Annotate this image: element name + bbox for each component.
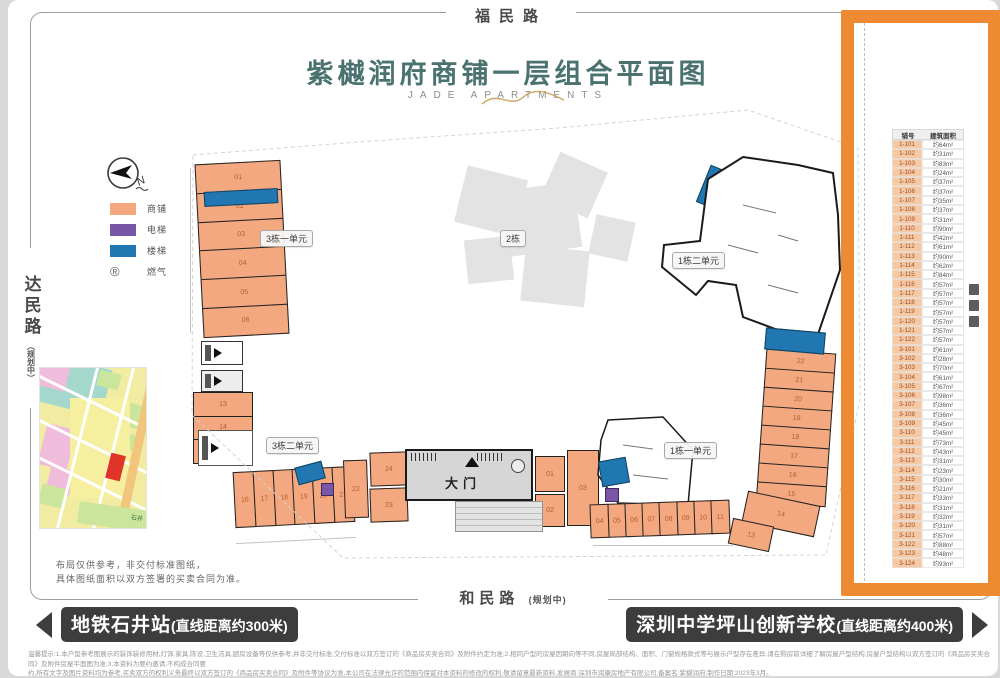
elevator-color-swatch [110, 224, 136, 236]
page-background: 福民路 达民路 （规划中） 和民路 (规划中) 紫樾润府商铺一层组合平面图 JA… [8, 0, 998, 676]
poi-distance: (直线距离约300米) [171, 618, 288, 634]
table-row: 1-104约24m² [892, 168, 964, 177]
poi-distance: (直线距离约400米) [836, 618, 953, 634]
main-gate: 大门 [405, 449, 533, 501]
building1-unit2-plan [648, 145, 853, 355]
badge-building3-unit2: 3栋二单元 [266, 437, 319, 454]
poi-metro: 地铁石井站(直线距离约300米) [36, 607, 298, 642]
table-header-area: 建筑面积 [923, 130, 963, 139]
disclaimer-line: 温馨提示:1.本户型参考图展示的装饰装修用材,灯饰,家具,陈设,卫生洁具,厨房设… [28, 650, 994, 669]
area-table-rows: 1-101约64m²1-102约31m²1-103约83m²1-104约24m²… [892, 140, 964, 568]
table-row: 1-112约61m² [892, 242, 964, 251]
table-row: 3-107约36m² [892, 400, 964, 409]
table-row: 1-122约57m² [892, 335, 964, 344]
stair-color-swatch [110, 245, 136, 257]
elevator-block [321, 483, 334, 496]
table-row: 3-115约30m² [892, 475, 964, 484]
gas-symbol-icon: ® [110, 266, 136, 278]
road-left-sub: （规划中） [26, 342, 37, 382]
table-row: 1-103约83m² [892, 159, 964, 168]
poi-name: 深圳中学坪山创新学校 [636, 615, 836, 636]
disclaimer-text: 温馨提示:1.本户型参考图展示的装饰装修用材,灯饰,家具,陈设,卫生洁具,厨房设… [28, 650, 994, 678]
table-row: 3-118约31m² [892, 503, 964, 512]
table-row: 3-123约48m² [892, 549, 964, 558]
gate-label: 大门 [445, 473, 481, 492]
table-row: 1-107约35m² [892, 196, 964, 205]
gate-arrow-icon [465, 457, 479, 467]
table-row: 1-117约57m² [892, 289, 964, 298]
table-row: 1-119约57m² [892, 307, 964, 316]
table-row: 1-101约64m² [892, 140, 964, 149]
badge-building1-unit1: 1栋一单元 [664, 442, 717, 459]
inset-map-label: 石井 [130, 512, 143, 523]
table-row: 3-109约45m² [892, 419, 964, 428]
gate-steps [455, 501, 543, 532]
road-left-name: 达民路 [19, 275, 44, 338]
table-row: 3-110约45m² [892, 428, 964, 437]
table-row: 3-116约21m² [892, 484, 964, 493]
table-row: 3-102约28m² [892, 354, 964, 363]
poi-school: 深圳中学坪山创新学校(直线距离约400米) [626, 607, 988, 642]
table-row: 3-122约88m² [892, 540, 964, 549]
arrow-right-icon [972, 612, 988, 638]
road-bottom-name: 和民路 [459, 590, 519, 607]
badge-building2: 2栋 [500, 230, 526, 247]
table-row: 1-109约31m² [892, 214, 964, 223]
location-inset-map: 石井 [40, 368, 146, 528]
table-row: 1-114约62m² [892, 261, 964, 270]
road-bottom-sub: (规划中) [529, 595, 567, 605]
table-row: 3-111约73m² [892, 438, 964, 447]
table-row: 1-116约57m² [892, 279, 964, 288]
table-row: 3-106约98m² [892, 391, 964, 400]
arrow-left-icon [36, 612, 52, 638]
table-row: 3-104约61m² [892, 372, 964, 381]
building1-unit1-shops-row: 0405060708091011 [590, 501, 729, 538]
road-label-bottom: 和民路 (规划中) [418, 584, 608, 611]
table-row: 3-103约70m² [892, 363, 964, 372]
table-row: 1-110约90m² [892, 224, 964, 233]
table-row: 3-114约23m² [892, 465, 964, 474]
table-row: 3-121约57m² [892, 530, 964, 539]
table-header-shop-no: 铺号 [893, 130, 923, 139]
table-row: 3-113约31m² [892, 456, 964, 465]
table-row: 1-121约57m² [892, 326, 964, 335]
table-row: 1-106约37m² [892, 186, 964, 195]
table-row: 3-117约33m² [892, 493, 964, 502]
stair-block [598, 457, 630, 487]
elevator-block [605, 488, 619, 502]
poi-name: 地铁石井站 [71, 615, 171, 636]
poster: 福民路 达民路 （规划中） 和民路 (规划中) 紫樾润府商铺一层组合平面图 JA… [0, 0, 1000, 678]
table-row: 1-118约57m² [892, 298, 964, 307]
north-compass-icon: N [106, 156, 152, 196]
shop-color-swatch [110, 203, 136, 215]
svg-text:N: N [135, 174, 148, 188]
poi-school-bar: 深圳中学坪山创新学校(直线距离约400米) [626, 607, 963, 642]
table-row: 3-112约43m² [892, 447, 964, 456]
note-line: 具体图纸面积以双方签署的买卖合同为准。 [56, 572, 246, 586]
poi-metro-bar: 地铁石井站(直线距离约300米) [61, 607, 298, 642]
table-row: 1-111约42m² [892, 233, 964, 242]
table-row: 1-102约31m² [892, 149, 964, 158]
disclaimer-line: 约,所有文字及图片资料均为参考,买卖双方的权利义务最终以双方签订的《商品房买卖合… [28, 669, 994, 678]
badge-building3-unit1: 3栋一单元 [260, 230, 313, 247]
table-row: 1-120约57m² [892, 317, 964, 326]
table-row: 1-113约90m² [892, 252, 964, 261]
table-row: 3-119约32m² [892, 512, 964, 521]
hatch-marks [477, 453, 503, 461]
table-row: 3-124约93m² [892, 558, 964, 567]
table-row: 3-101约61m² [892, 345, 964, 354]
table-row: 1-105约37m² [892, 177, 964, 186]
shop-area-table: 铺号 建筑面积 1-101约64m²1-102约31m²1-103约83m²1-… [892, 129, 964, 568]
hatch-marks [411, 453, 437, 461]
table-row: 3-105约67m² [892, 382, 964, 391]
badge-building1-unit2: 1栋二单元 [672, 252, 725, 269]
table-row: 3-120约31m² [892, 521, 964, 530]
fountain-circle [511, 459, 525, 473]
table-row: 1-115约84m² [892, 270, 964, 279]
table-row: 1-108约37m² [892, 205, 964, 214]
shop-unit: 11 [710, 500, 730, 534]
road-label-top: 福民路 [446, 3, 576, 28]
table-header-row: 铺号 建筑面积 [892, 129, 964, 140]
table-row: 3-108约36m² [892, 410, 964, 419]
